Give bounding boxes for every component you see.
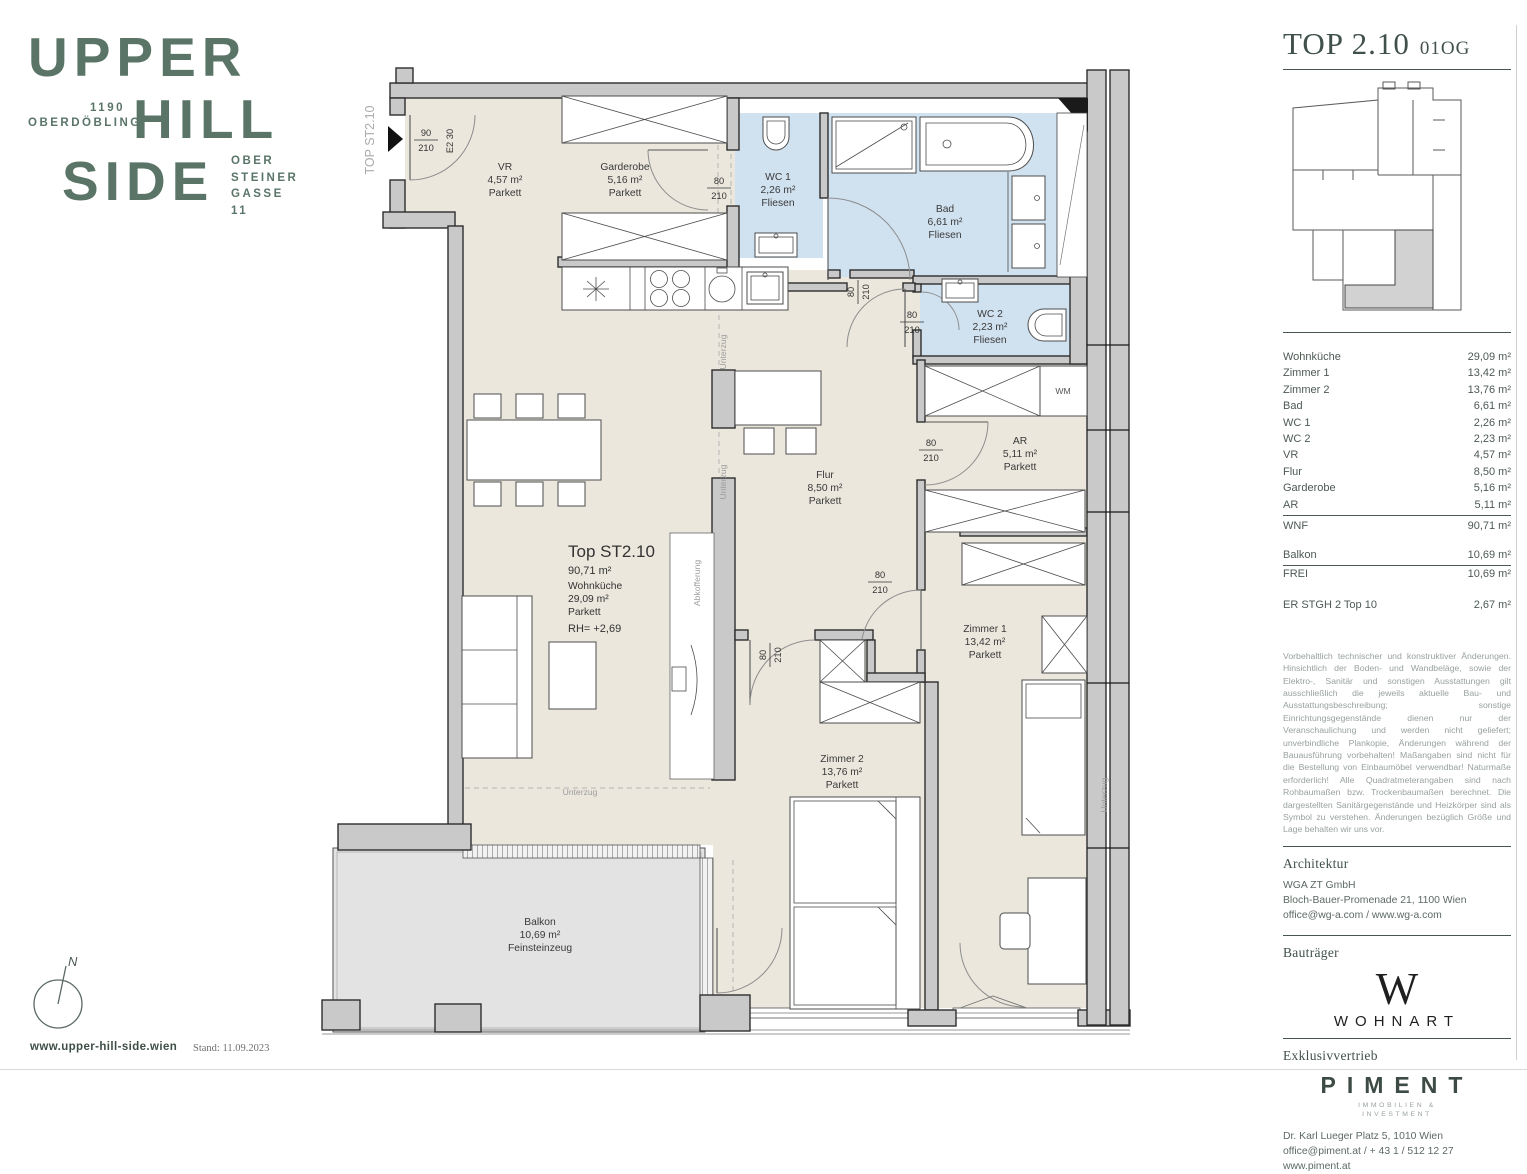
room-label-bad: Bad (936, 204, 955, 215)
room-area-ar: 5,11 m² (1003, 449, 1038, 460)
room-area-garderobe: 5,16 m² (608, 175, 643, 186)
dim-door: 210 (872, 585, 888, 595)
brand-address: OBER STEINER GASSE 11 (231, 153, 298, 219)
table-row: WC 12,26 m² (1283, 415, 1511, 431)
room-floor-zimmer2: Parkett (826, 780, 859, 791)
vertrieb-contact: office@piment.at / + 43 1 / 512 12 27 (1283, 1144, 1511, 1159)
piment-sub: IMMOBILIEN & INVESTMENT (1283, 1101, 1511, 1119)
room-label-wc2: WC 2 (977, 309, 1003, 320)
table-row: Wohnküche29,09 m² (1283, 349, 1511, 365)
room-area-zimmer2: 13,76 m² (822, 767, 863, 778)
section-heading-bautraeger: Bauträger (1283, 945, 1511, 961)
room-label-garderobe: Garderobe (600, 162, 650, 173)
unit-header: TOP 2.10 01OG (1283, 26, 1511, 62)
room-floor-wc1: Fliesen (761, 198, 794, 209)
legal-disclaimer: Vorbehaltlich technischer und konstrukti… (1283, 650, 1511, 836)
room-area-bad: 6,61 m² (928, 217, 963, 228)
unterzug-label: Unterzug (563, 787, 598, 797)
abkofferung-label: Abkofferung (692, 560, 702, 606)
dim-door: 80 (758, 650, 768, 660)
room-label-flur: Flur (816, 470, 834, 481)
unit-vertical-label: TOP ST2.10 (363, 105, 377, 174)
dim-entry-width: 90 (421, 128, 431, 138)
room-area-balkon: 10,69 m² (520, 930, 561, 941)
room-floor-vr: Parkett (489, 188, 522, 199)
unit-room-height: RH= +2,69 (568, 623, 621, 635)
dim-door: 80 (714, 176, 724, 186)
wohnart-mark: W (1283, 967, 1511, 1011)
unit-area: 90,71 m² (568, 565, 612, 577)
unit-floor-finish: Parkett (568, 607, 601, 618)
dim-entry-height: 210 (418, 143, 434, 153)
table-row: VR4,57 m² (1283, 447, 1511, 463)
table-row-wnf: WNF90,71 m² (1283, 515, 1511, 534)
room-area-wc2: 2,23 m² (973, 322, 1008, 333)
architect-address: Bloch-Bauer-Promenade 21, 1100 Wien (1283, 893, 1511, 908)
room-area-zimmer1: 13,42 m² (965, 637, 1006, 648)
dim-door: 80 (846, 287, 856, 297)
table-row: Garderobe5,16 m² (1283, 480, 1511, 496)
dim-door: 210 (711, 191, 727, 201)
dim-door: 210 (861, 284, 871, 300)
piment-wordmark: PIMENT (1283, 1072, 1511, 1099)
room-floor-ar: Parkett (1004, 462, 1037, 473)
brand-line-3: SIDE (62, 154, 214, 209)
section-heading-exklusivvertrieb: Exklusivvertrieb (1283, 1048, 1511, 1064)
table-row: Zimmer 113,42 m² (1283, 365, 1511, 381)
unit-room: Wohnküche (568, 581, 622, 592)
dim-door: 210 (904, 325, 920, 335)
sidebar: TOP 2.10 01OG Wohnküche29,09 m² Zimmer 1… (1283, 26, 1511, 1174)
unit-title: Top ST2.10 (568, 542, 655, 561)
floorplan-page: { "brand":{"line1":"UPPER","line2":"HILL… (0, 0, 1527, 1080)
table-row: Bad6,61 m² (1283, 398, 1511, 414)
wohnart-logo: W WOHNART (1283, 967, 1511, 1030)
washing-machine-label: WM (1055, 386, 1070, 396)
room-floor-garderobe: Parkett (609, 188, 642, 199)
dim-door: 80 (926, 438, 936, 448)
architect-contact: office@wg-a.com / www.wg-a.com (1283, 908, 1511, 923)
keyplan-drawing (1283, 80, 1473, 325)
area-table: Wohnküche29,09 m² Zimmer 113,42 m² Zimme… (1283, 349, 1511, 614)
table-row: WC 22,23 m² (1283, 431, 1511, 447)
room-floor-zimmer1: Parkett (969, 650, 1002, 661)
floorplan-drawing: 90 210 E2 30 80 210 80 210 80 210 80 210… (320, 55, 1190, 1060)
room-area-wc1: 2,26 m² (761, 185, 796, 196)
wohnart-wordmark: WOHNART (1283, 1013, 1511, 1030)
dim-door: 80 (907, 310, 917, 320)
unterzug-label: Unterzug (718, 334, 728, 369)
room-label-vr: VR (498, 162, 512, 173)
page-edge-rule (1516, 25, 1517, 1060)
north-compass: N (18, 952, 113, 1047)
dim-door: 80 (875, 570, 885, 580)
vertrieb-website: www.piment.at (1283, 1159, 1511, 1174)
table-row-er: ER STGH 2 Top 102,67 m² (1283, 597, 1511, 613)
dim-door: 210 (773, 647, 783, 663)
unterzug-label: Unterzug (1099, 777, 1109, 812)
room-label-balkon: Balkon (524, 917, 556, 928)
vertrieb-section: Exklusivvertrieb PIMENT IMMOBILIEN & INV… (1283, 1048, 1511, 1174)
table-row: Flur8,50 m² (1283, 464, 1511, 480)
room-area-vr: 4,57 m² (488, 175, 523, 186)
page-title: TOP 2.10 (1283, 26, 1410, 62)
north-label: N (68, 954, 78, 969)
room-label-zimmer2: Zimmer 2 (820, 754, 864, 765)
table-row: Zimmer 213,76 m² (1283, 382, 1511, 398)
room-label-ar: AR (1013, 436, 1027, 447)
room-label-wc1: WC 1 (765, 172, 791, 183)
unit-room-area: 29,09 m² (568, 594, 609, 605)
room-floor-wc2: Fliesen (973, 335, 1006, 346)
dim-door: 210 (923, 453, 939, 463)
architektur-section: Architektur WGA ZT GmbH Bloch-Bauer-Prom… (1283, 856, 1511, 923)
table-row-frei: FREI10,69 m² (1283, 566, 1511, 582)
keyplan (1283, 80, 1511, 330)
footer-divider (0, 1069, 1527, 1070)
floor-label: 01OG (1420, 38, 1470, 60)
unterzug-label: Unterzug (718, 464, 728, 499)
section-heading-architektur: Architektur (1283, 856, 1511, 872)
room-label-zimmer1: Zimmer 1 (963, 624, 1007, 635)
table-row: AR5,11 m² (1283, 497, 1511, 513)
plan-date: Stand: 11.09.2023 (193, 1043, 269, 1054)
brand-district: 1190 OBERDÖBLING (28, 101, 125, 131)
bautraeger-section: Bauträger W WOHNART (1283, 945, 1511, 1030)
footer-website: www.upper-hill-side.wien (30, 1041, 177, 1053)
room-area-flur: 8,50 m² (808, 483, 843, 494)
architect-name: WGA ZT GmbH (1283, 878, 1511, 893)
brand-line-1: UPPER (28, 30, 248, 85)
table-row-balkon: Balkon10,69 m² (1283, 547, 1511, 565)
brand-line-2: HILL (133, 92, 279, 147)
piment-logo: PIMENT IMMOBILIEN & INVESTMENT Dr. Karl … (1283, 1072, 1511, 1174)
vertrieb-address: Dr. Karl Lueger Platz 5, 1010 Wien (1283, 1129, 1511, 1144)
room-floor-bad: Fliesen (928, 230, 961, 241)
room-floor-balkon: Feinsteinzeug (508, 943, 572, 954)
room-floor-flur: Parkett (809, 496, 842, 507)
dim-entry-code: E2 30 (445, 129, 455, 153)
